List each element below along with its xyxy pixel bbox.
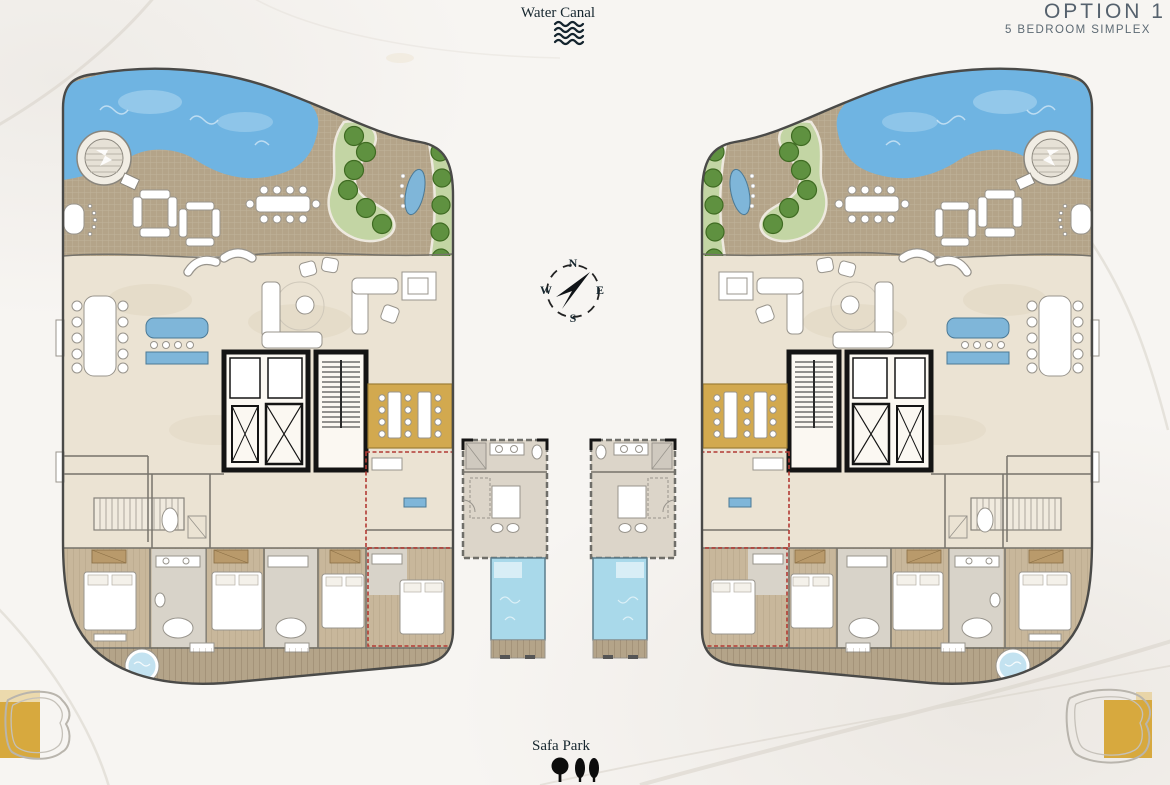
water-canal-landmark: Water Canal xyxy=(521,5,595,44)
pool-pavilion-left xyxy=(463,440,547,659)
compass-rose-icon: N S W E xyxy=(540,256,604,325)
pool-pavilion-right xyxy=(591,440,675,659)
left-residence-plan xyxy=(55,55,465,695)
safa-park-label: Safa Park xyxy=(532,738,590,754)
compass-e: E xyxy=(596,283,604,297)
crest-bottom-right xyxy=(1067,690,1152,763)
waves-icon xyxy=(555,22,583,44)
page-title: OPTION 1 xyxy=(1044,0,1166,23)
page-subtitle: 5 BEDROOM SIMPLEX xyxy=(1005,24,1151,36)
right-residence-plan xyxy=(690,55,1100,695)
compass-s: S xyxy=(570,311,577,325)
compass-w: W xyxy=(540,283,552,297)
crest-bottom-left xyxy=(0,690,69,759)
floorplan-canvas: OPTION 1 5 BEDROOM SIMPLEX Water Canal N… xyxy=(0,0,1170,785)
header: OPTION 1 5 BEDROOM SIMPLEX xyxy=(1005,0,1166,36)
compass-n: N xyxy=(569,256,578,270)
water-canal-label: Water Canal xyxy=(521,5,595,21)
